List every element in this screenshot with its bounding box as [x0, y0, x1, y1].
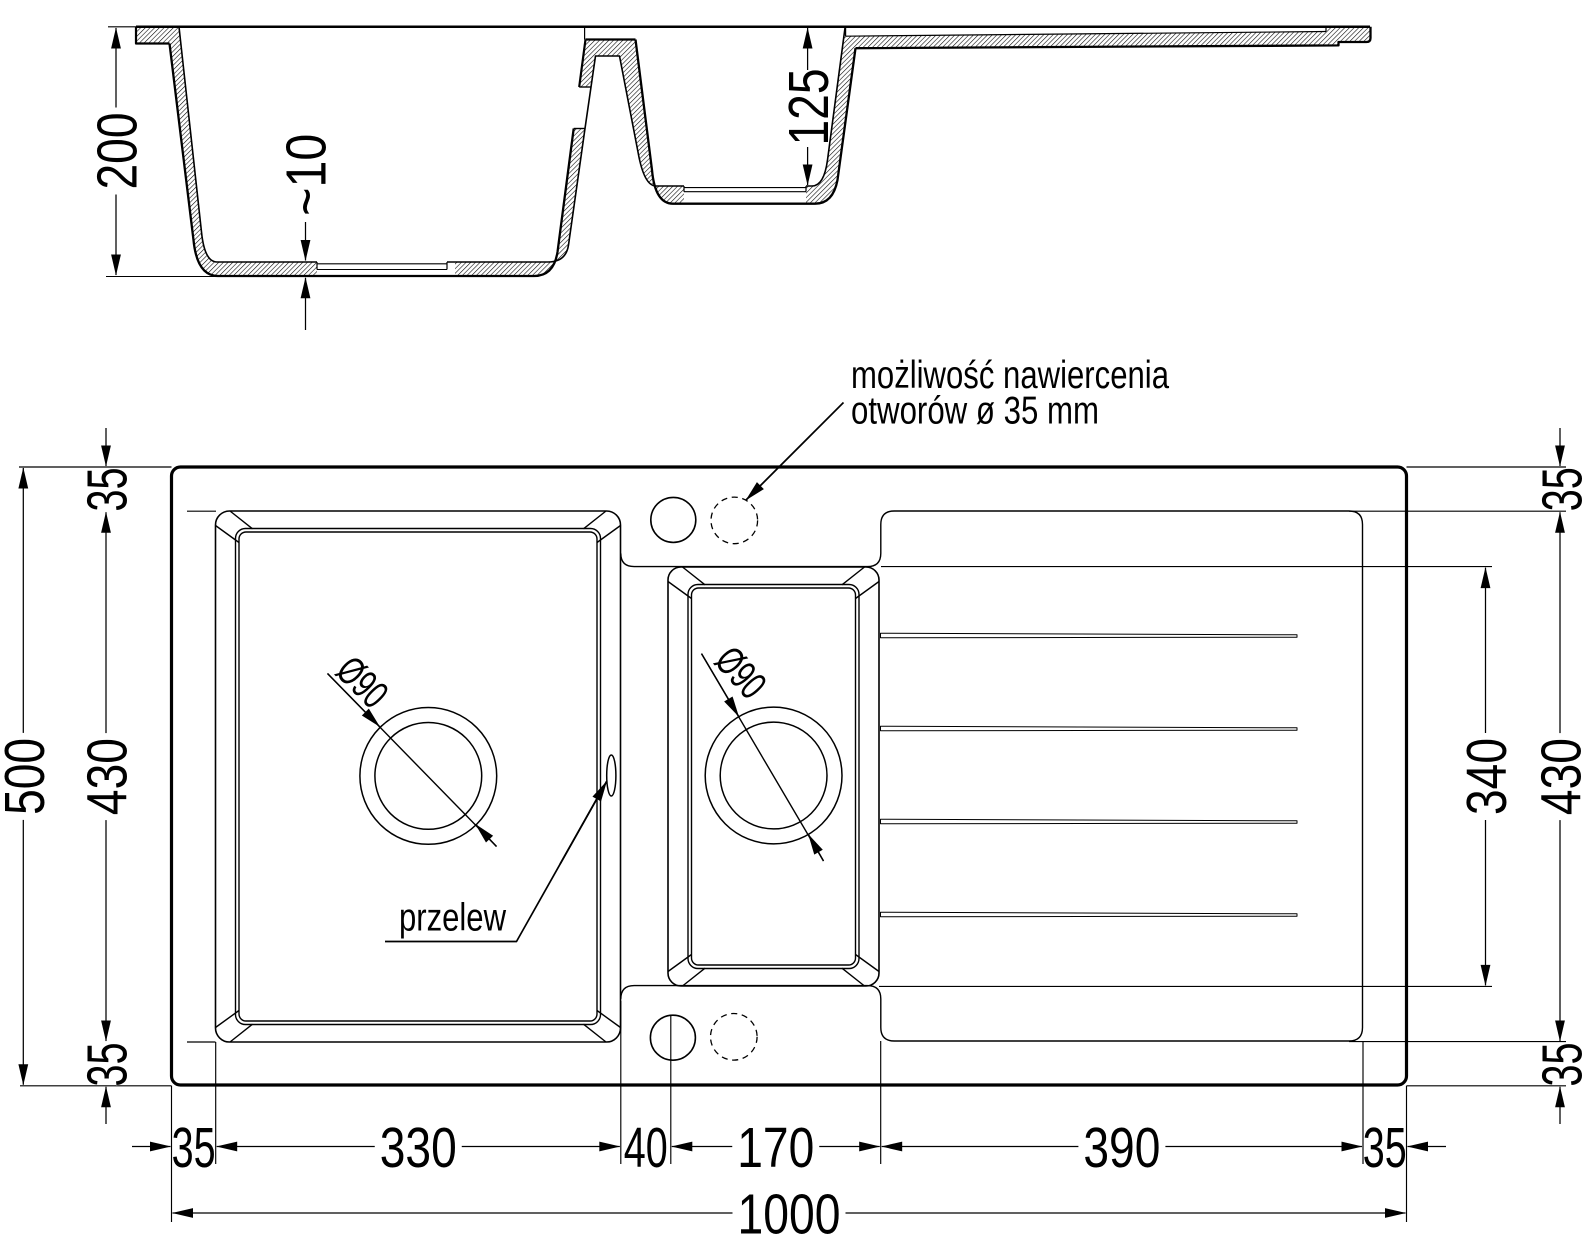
svg-text:125: 125 — [777, 69, 841, 146]
svg-text:340: 340 — [1455, 738, 1519, 815]
svg-text:~10: ~10 — [275, 134, 339, 216]
svg-text:35: 35 — [1531, 1043, 1595, 1087]
svg-text:430: 430 — [1530, 738, 1594, 815]
svg-text:430: 430 — [76, 738, 140, 815]
svg-text:170: 170 — [737, 1116, 814, 1180]
svg-text:40: 40 — [624, 1116, 668, 1180]
svg-text:35: 35 — [76, 468, 140, 512]
svg-text:35: 35 — [76, 1043, 140, 1087]
svg-text:1000: 1000 — [738, 1183, 841, 1236]
svg-text:390: 390 — [1083, 1116, 1160, 1180]
svg-text:przelew: przelew — [399, 897, 506, 940]
svg-text:500: 500 — [0, 738, 57, 815]
svg-text:35: 35 — [1531, 467, 1595, 511]
svg-text:35: 35 — [172, 1116, 216, 1180]
svg-text:200: 200 — [86, 113, 150, 190]
svg-text:35: 35 — [1363, 1116, 1407, 1180]
svg-text:330: 330 — [380, 1116, 457, 1180]
svg-text:otworów ø 35 mm: otworów ø 35 mm — [851, 390, 1099, 433]
